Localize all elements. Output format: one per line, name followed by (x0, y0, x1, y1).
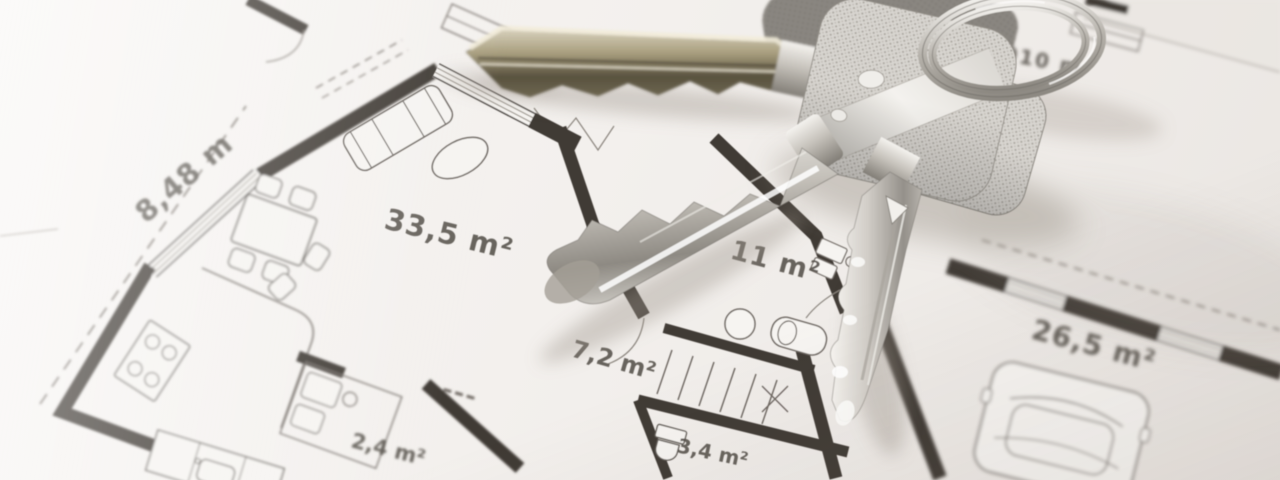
door-swing (266, 30, 304, 62)
boiler (768, 314, 830, 358)
paper-line (0, 229, 58, 236)
wall-stairs-right (802, 350, 836, 478)
photo-keys-on-floor-plan: 8,48 m 2,4 m² (0, 0, 1280, 480)
stove (114, 320, 190, 401)
car (965, 357, 1159, 480)
dashed-line (316, 40, 402, 88)
sink-counter (146, 430, 285, 480)
wall (248, 0, 306, 30)
floor-plan-photo-svg: 8,48 m 2,4 m² (0, 0, 1280, 480)
room-area-label-bath: 3,4 m² (675, 433, 750, 471)
basin (725, 309, 755, 339)
coffee-table (426, 129, 495, 187)
room-area-label-living: 33,5 m² (381, 202, 517, 267)
key-middle-dimple (858, 70, 885, 89)
kitchen-counter (202, 268, 313, 428)
